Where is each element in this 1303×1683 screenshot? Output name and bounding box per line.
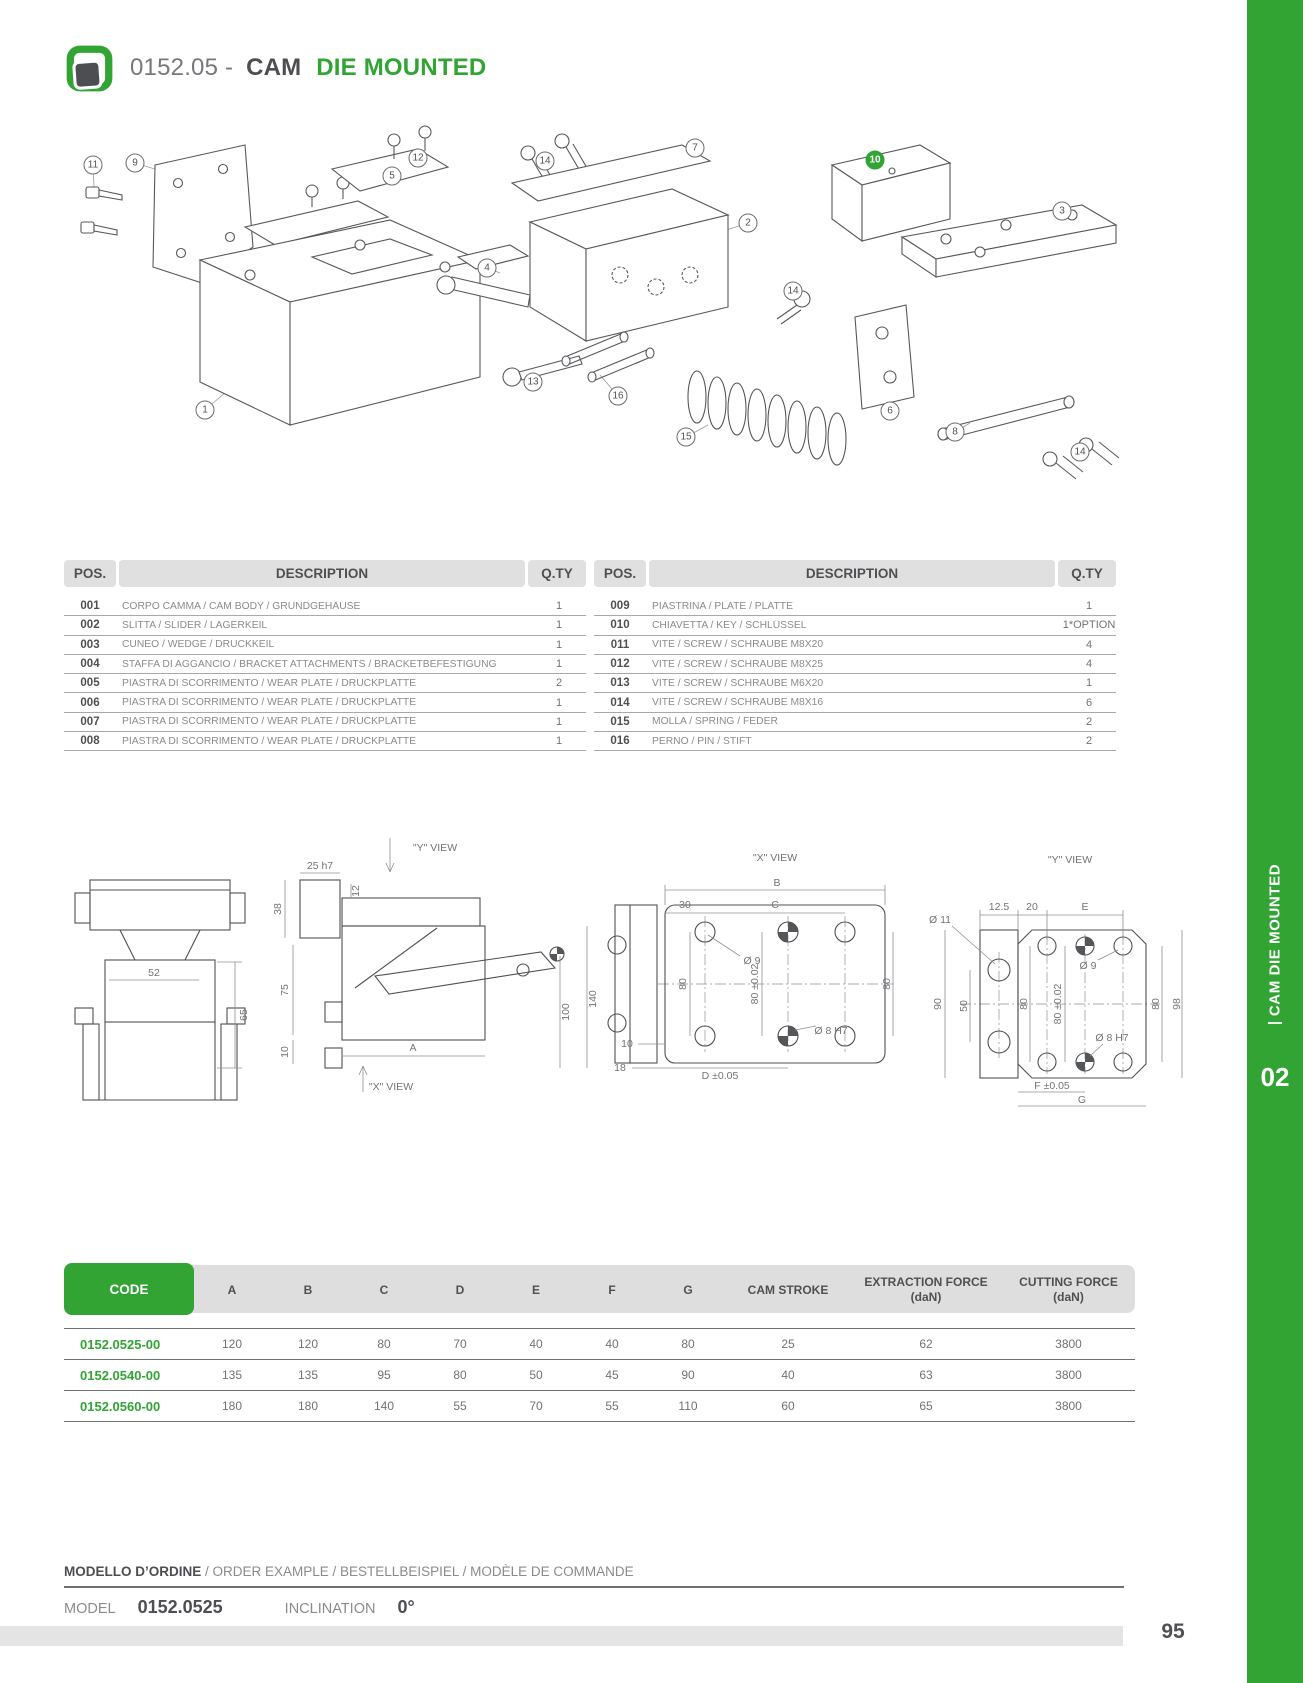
dimension-label: 12.5 <box>989 901 1009 913</box>
part-row: 005 PIASTRA DI SCORRIMENTO / WEAR PLATE … <box>64 674 586 693</box>
dimension-label: E <box>1081 901 1088 913</box>
dimension-label: 10 <box>279 1046 291 1058</box>
inclination-label: INCLINATION <box>285 1601 376 1617</box>
part-row: 016 PERNO / PIN / STIFT 2 <box>594 732 1116 751</box>
parts-table-left-body: 001 CORPO CAMMA / CAM BODY / GRUNDGEHÄUS… <box>64 597 586 751</box>
part-callout-4: 4 <box>478 259 497 278</box>
dimension-label: F ±0.05 <box>1034 1080 1070 1092</box>
dimension-label: 90 <box>932 998 944 1010</box>
catalog-page: CAM DIE MOUNTED 02 0152.05 - CAM DIE MOU… <box>0 0 1303 1683</box>
part-pos: 008 <box>64 735 116 747</box>
part-callout-3: 3 <box>1053 202 1072 221</box>
part-row: 008 PIASTRA DI SCORRIMENTO / WEAR PLATE … <box>64 732 586 751</box>
order-example-heading: MODELLO D’ORDINE / ORDER EXAMPLE / BESTE… <box>64 1564 1124 1588</box>
spec-table: CODE ABCDEFGCAM STROKEEXTRACTION FORCE(d… <box>64 1265 1135 1422</box>
page-number: 95 <box>1138 1620 1208 1644</box>
part-row: 010 CHIAVETTA / KEY / SCHLÜSSEL 1*OPTION <box>594 616 1116 635</box>
part-qty: 1 <box>532 619 586 631</box>
front-view-drawing: 5265 <box>65 780 255 1120</box>
part-qty: 1 <box>532 697 586 709</box>
part-pos: 005 <box>64 677 116 689</box>
part-row: 003 CUNEO / WEDGE / DRUCKKEIL 1 <box>64 636 586 655</box>
spec-value: 3800 <box>1002 1399 1135 1413</box>
spec-value: 110 <box>650 1399 726 1413</box>
dimension-label: 80 ±0.02 <box>1052 984 1064 1025</box>
brand-logo-icon <box>62 42 116 96</box>
side-view-drawing: 25 h7"Y" VIEW12387510100140A"X" VIEW <box>255 780 600 1120</box>
part-qty: 2 <box>532 677 586 689</box>
spec-value: 60 <box>726 1399 850 1413</box>
part-row: 001 CORPO CAMMA / CAM BODY / GRUNDGEHÄUS… <box>64 597 586 616</box>
part-callout-14: 14 <box>784 282 803 301</box>
part-description: CUNEO / WEDGE / DRUCKKEIL <box>116 639 532 650</box>
title-die-mounted: DIE MOUNTED <box>316 54 486 81</box>
spec-value: 120 <box>270 1337 346 1351</box>
parts-table-right-body: 009 PIASTRINA / PLATE / PLATTE 1 010 CHI… <box>594 597 1116 751</box>
part-callout-8: 8 <box>946 423 965 442</box>
exploded-view-drawing: 119125147210341413161516814 <box>60 125 1210 520</box>
dimension-label: 50 <box>958 1000 970 1012</box>
part-callout-10: 10 <box>866 151 885 170</box>
spec-value: 65 <box>850 1399 1002 1413</box>
dimension-label: Ø 11 <box>929 914 951 926</box>
part-qty: 1 <box>532 716 586 728</box>
part-description: PIASTRA DI SCORRIMENTO / WEAR PLATE / DR… <box>116 697 532 708</box>
dimension-label: 52 <box>148 967 160 979</box>
spec-value: 55 <box>574 1399 650 1413</box>
spec-column-header: E <box>498 1283 574 1298</box>
title-cam: CAM <box>246 54 301 81</box>
part-pos: 015 <box>594 716 646 728</box>
footer-bar <box>0 1626 1123 1646</box>
spec-value: 63 <box>850 1368 1002 1382</box>
dimension-label: B <box>773 877 780 889</box>
part-row: 006 PIASTRA DI SCORRIMENTO / WEAR PLATE … <box>64 693 586 712</box>
dimension-label: 80 <box>677 978 689 990</box>
dimension-label: 98 <box>1171 998 1183 1010</box>
part-pos: 016 <box>594 735 646 747</box>
dimension-label: 25 h7 <box>307 860 333 872</box>
spec-value: 180 <box>270 1399 346 1413</box>
part-callout-12: 12 <box>409 149 428 168</box>
spec-column-header: CAM STROKE <box>726 1283 850 1298</box>
dimension-label: 18 <box>614 1062 626 1074</box>
part-qty: 4 <box>1062 639 1116 651</box>
part-callout-15: 15 <box>677 428 696 447</box>
spec-value: 140 <box>346 1399 422 1413</box>
part-pos: 010 <box>594 619 646 631</box>
dimension-label: C <box>771 899 779 911</box>
part-description: SLITTA / SLIDER / LAGERKEIL <box>116 620 532 631</box>
spec-value: 70 <box>498 1399 574 1413</box>
side-tab-chapter: 02 <box>1247 1062 1303 1093</box>
part-description: PIASTRA DI SCORRIMENTO / WEAR PLATE / DR… <box>116 678 532 689</box>
spec-value: 55 <box>422 1399 498 1413</box>
order-model-line: MODEL 0152.0525 INCLINATION 0° <box>64 1597 1124 1618</box>
spec-code: 0152.0540-00 <box>64 1368 194 1383</box>
spec-column-header: F <box>574 1283 650 1298</box>
dimension-label: 65 <box>238 1009 250 1021</box>
section-side-tab: CAM DIE MOUNTED 02 <box>1247 0 1303 1683</box>
part-description: PERNO / PIN / STIFT <box>646 736 1062 747</box>
spec-value: 40 <box>498 1337 574 1351</box>
dimension-label: A <box>409 1042 416 1054</box>
spec-value: 62 <box>850 1337 1002 1351</box>
spec-value: 80 <box>650 1337 726 1351</box>
parts-table-right: POS. DESCRIPTION Q.TY 009 PIASTRINA / PL… <box>594 560 1116 751</box>
order-heading-bold: MODELLO D’ORDINE <box>64 1564 201 1579</box>
part-pos: 014 <box>594 697 646 709</box>
part-qty: 2 <box>1062 716 1116 728</box>
part-qty: 1 <box>532 658 586 670</box>
part-qty: 1 <box>532 735 586 747</box>
spec-value: 135 <box>194 1368 270 1382</box>
part-callout-9: 9 <box>126 154 145 173</box>
pos-column-header: POS. <box>594 560 646 587</box>
part-row: 015 MOLLA / SPRING / FEDER 2 <box>594 713 1116 732</box>
code-column-header: CODE <box>64 1263 194 1315</box>
product-code: 0152.05 - <box>130 54 233 81</box>
part-pos: 006 <box>64 697 116 709</box>
side-tab-separator <box>1268 1022 1282 1024</box>
part-description: PIASTRA DI SCORRIMENTO / WEAR PLATE / DR… <box>116 716 532 727</box>
dimension-label: 10 <box>621 1038 633 1050</box>
parts-table-left: POS. DESCRIPTION Q.TY 001 CORPO CAMMA / … <box>64 560 586 751</box>
spec-table-header: CODE ABCDEFGCAM STROKEEXTRACTION FORCE(d… <box>64 1265 1135 1313</box>
part-description: VITE / SCREW / SCHRAUBE M8X25 <box>646 659 1062 670</box>
part-pos: 003 <box>64 639 116 651</box>
part-callout-7: 7 <box>686 139 705 158</box>
spec-column-header: EXTRACTION FORCE(daN) <box>850 1275 1002 1305</box>
part-description: PIASTRINA / PLATE / PLATTE <box>646 601 1062 612</box>
part-description: VITE / SCREW / SCHRAUBE M6X20 <box>646 678 1062 689</box>
part-row: 004 STAFFA DI AGGANCIO / BRACKET ATTACHM… <box>64 655 586 674</box>
part-description: CORPO CAMMA / CAM BODY / GRUNDGEHÄUSE <box>116 601 532 612</box>
part-pos: 004 <box>64 658 116 670</box>
inclination-value: 0° <box>397 1597 414 1618</box>
spec-column-header: CUTTING FORCE(daN) <box>1002 1275 1135 1305</box>
dimension-label: "X" VIEW <box>369 1081 413 1093</box>
spec-value: 80 <box>422 1368 498 1382</box>
part-row: 009 PIASTRINA / PLATE / PLATTE 1 <box>594 597 1116 616</box>
qty-column-header: Q.TY <box>528 560 586 587</box>
part-row: 002 SLITTA / SLIDER / LAGERKEIL 1 <box>64 616 586 635</box>
dimension-label: G <box>1078 1094 1086 1106</box>
part-qty: 1*OPTION <box>1062 619 1116 631</box>
dimension-label: Ø 8 H7 <box>814 1025 847 1037</box>
spec-column-header: B <box>270 1283 346 1298</box>
part-qty: 1 <box>532 600 586 612</box>
part-callout-16: 16 <box>609 387 628 406</box>
part-callout-2: 2 <box>739 214 758 233</box>
spec-value: 135 <box>270 1368 346 1382</box>
dimension-label: 140 <box>587 990 599 1008</box>
part-callout-11: 11 <box>84 156 103 175</box>
part-qty: 1 <box>532 639 586 651</box>
spec-value: 95 <box>346 1368 422 1382</box>
spec-column-header: A <box>194 1283 270 1298</box>
part-pos: 002 <box>64 619 116 631</box>
spec-column-header: C <box>346 1283 422 1298</box>
part-callout-14: 14 <box>1071 443 1090 462</box>
spec-column-header: G <box>650 1283 726 1298</box>
part-description: VITE / SCREW / SCHRAUBE M8X20 <box>646 639 1062 650</box>
dimension-label: 38 <box>272 903 284 915</box>
part-pos: 012 <box>594 658 646 670</box>
pos-column-header: POS. <box>64 560 116 587</box>
part-callout-13: 13 <box>524 373 543 392</box>
part-description: PIASTRA DI SCORRIMENTO / WEAR PLATE / DR… <box>116 736 532 747</box>
part-qty: 4 <box>1062 658 1116 670</box>
spec-code: 0152.0525-00 <box>64 1337 194 1352</box>
order-heading-rest: / ORDER EXAMPLE / BESTELLBEISPIEL / MODÈ… <box>201 1564 633 1579</box>
part-row: 012 VITE / SCREW / SCHRAUBE M8X25 4 <box>594 655 1116 674</box>
part-pos: 011 <box>594 639 646 651</box>
dimension-label: 80 ±0.02 <box>749 964 761 1005</box>
parts-table-header: POS. DESCRIPTION Q.TY <box>64 560 586 587</box>
part-callout-6: 6 <box>881 402 900 421</box>
x-view-drawing: "X" VIEWB30CØ 98080 ±0.0280Ø 8 H71018D ±… <box>600 780 900 1120</box>
dimension-label: 20 <box>1026 901 1038 913</box>
dimension-label: Ø 9 <box>1080 960 1097 972</box>
dimension-label: 80 <box>881 978 893 990</box>
dimension-label: 12 <box>350 885 362 897</box>
spec-code: 0152.0560-00 <box>64 1399 194 1414</box>
dimension-label: "Y" VIEW <box>1048 854 1092 866</box>
spec-value: 70 <box>422 1337 498 1351</box>
part-callout-1: 1 <box>196 401 215 420</box>
part-row: 011 VITE / SCREW / SCHRAUBE M8X20 4 <box>594 636 1116 655</box>
dimension-label: 80 <box>1018 998 1030 1010</box>
part-row: 007 PIASTRA DI SCORRIMENTO / WEAR PLATE … <box>64 713 586 732</box>
spec-value: 90 <box>650 1368 726 1382</box>
part-qty: 2 <box>1062 735 1116 747</box>
model-label: MODEL <box>64 1601 116 1617</box>
spec-row: 0152.0540-00135135958050459040633800 <box>64 1360 1135 1391</box>
parts-table-header: POS. DESCRIPTION Q.TY <box>594 560 1116 587</box>
dimension-label: 100 <box>560 1003 572 1021</box>
spec-value: 25 <box>726 1337 850 1351</box>
spec-value: 3800 <box>1002 1368 1135 1382</box>
qty-column-header: Q.TY <box>1058 560 1116 587</box>
spec-value: 120 <box>194 1337 270 1351</box>
part-callout-14: 14 <box>536 152 555 171</box>
exploded-view-art <box>60 125 1210 520</box>
part-row: 013 VITE / SCREW / SCHRAUBE M6X20 1 <box>594 674 1116 693</box>
part-description: MOLLA / SPRING / FEDER <box>646 716 1062 727</box>
spec-row: 0152.0525-00120120807040408025623800 <box>64 1329 1135 1360</box>
spec-value: 180 <box>194 1399 270 1413</box>
part-pos: 013 <box>594 677 646 689</box>
description-column-header: DESCRIPTION <box>649 560 1055 587</box>
part-qty: 1 <box>1062 677 1116 689</box>
dimension-label: 80 <box>1150 998 1162 1010</box>
side-tab-label: CAM DIE MOUNTED <box>1267 864 1284 1016</box>
spec-value: 45 <box>574 1368 650 1382</box>
spec-row: 0152.0560-0018018014055705511060653800 <box>64 1391 1135 1422</box>
dimension-label: D ±0.05 <box>702 1070 739 1082</box>
part-pos: 001 <box>64 600 116 612</box>
dimension-label: 75 <box>279 984 291 996</box>
part-callout-5: 5 <box>383 167 402 186</box>
part-pos: 009 <box>594 600 646 612</box>
dimension-label: 30 <box>679 899 691 911</box>
dimension-label: "Y" VIEW <box>413 842 457 854</box>
part-description: STAFFA DI AGGANCIO / BRACKET ATTACHMENTS… <box>116 659 532 670</box>
y-view-drawing: "Y" VIEWØ 1112.520EØ 990508080 ±0.028098… <box>900 780 1190 1120</box>
spec-value: 40 <box>574 1337 650 1351</box>
part-description: CHIAVETTA / KEY / SCHLÜSSEL <box>646 620 1062 631</box>
order-example: MODELLO D’ORDINE / ORDER EXAMPLE / BESTE… <box>64 1564 1124 1618</box>
part-qty: 6 <box>1062 697 1116 709</box>
spec-table-body: 0152.0525-00120120807040408025623800 015… <box>64 1328 1135 1422</box>
spec-value: 50 <box>498 1368 574 1382</box>
part-description: VITE / SCREW / SCHRAUBE M8X16 <box>646 697 1062 708</box>
page-title: 0152.05 - CAM DIE MOUNTED <box>130 54 486 82</box>
dimension-label: "X" VIEW <box>753 852 797 864</box>
description-column-header: DESCRIPTION <box>119 560 525 587</box>
part-row: 014 VITE / SCREW / SCHRAUBE M8X16 6 <box>594 693 1116 712</box>
part-pos: 007 <box>64 716 116 728</box>
spec-value: 80 <box>346 1337 422 1351</box>
spec-value: 3800 <box>1002 1337 1135 1351</box>
spec-column-header: D <box>422 1283 498 1298</box>
dimension-label: Ø 8 H7 <box>1095 1032 1128 1044</box>
spec-value: 40 <box>726 1368 850 1382</box>
model-value: 0152.0525 <box>138 1597 223 1618</box>
part-qty: 1 <box>1062 600 1116 612</box>
